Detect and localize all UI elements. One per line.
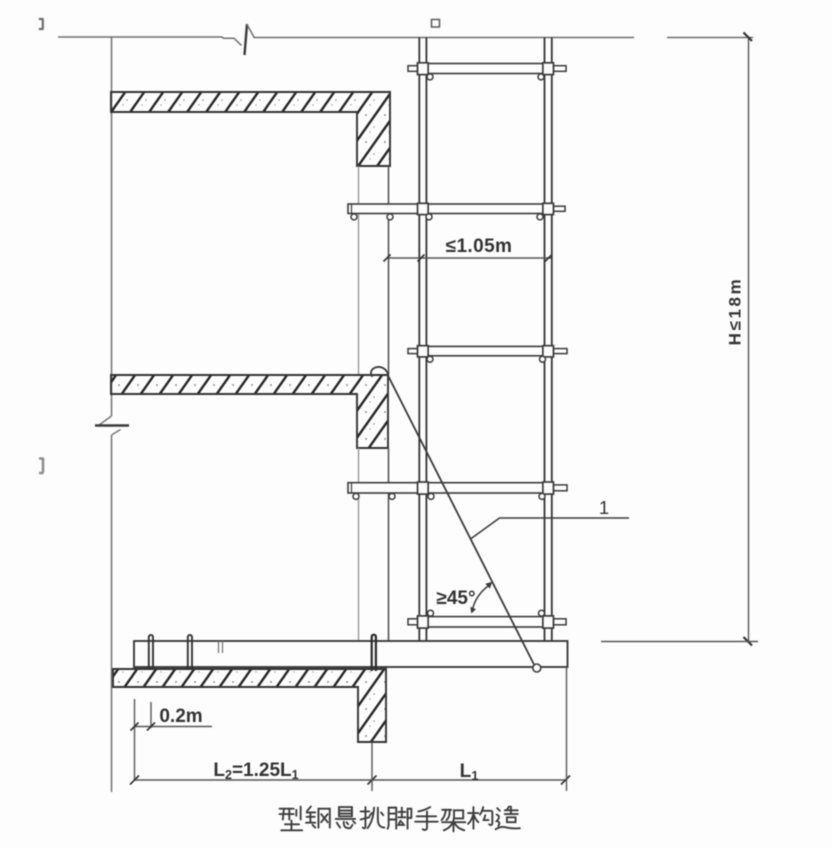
svg-text:≤1.05m: ≤1.05m (446, 236, 513, 257)
svg-text:≥45°: ≥45° (436, 588, 475, 609)
svg-text:H≤18m: H≤18m (726, 277, 745, 346)
svg-text:1: 1 (599, 497, 609, 518)
svg-text:0.2m: 0.2m (159, 706, 202, 727)
